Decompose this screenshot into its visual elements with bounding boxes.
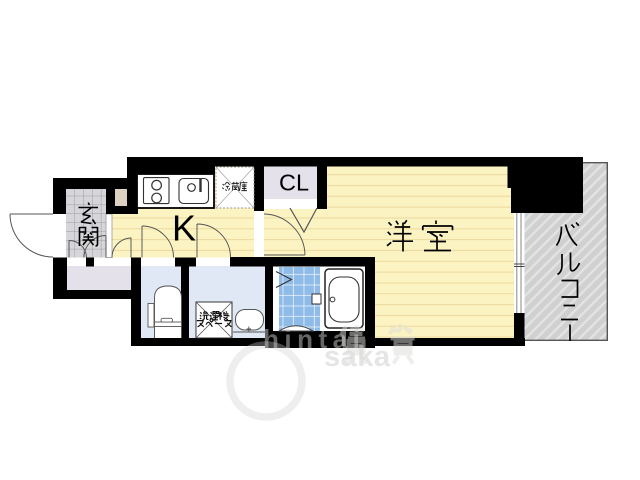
svg-text:K: K bbox=[172, 208, 196, 249]
svg-text:CL: CL bbox=[279, 170, 309, 196]
